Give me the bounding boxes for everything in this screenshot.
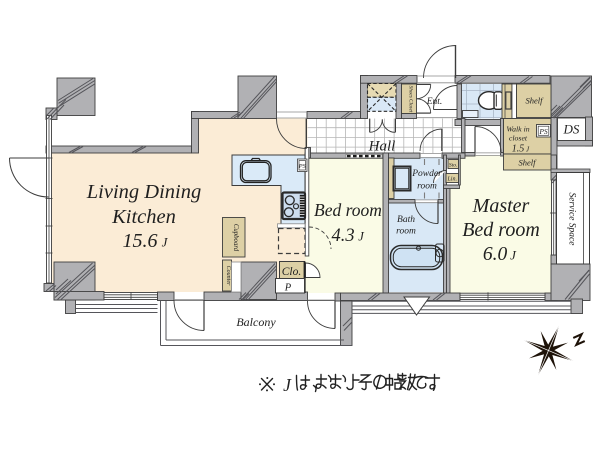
svg-text:4.3: 4.3 (331, 226, 354, 246)
svg-text:6.0: 6.0 (483, 244, 508, 265)
svg-text:Cupboard: Cupboard (232, 224, 239, 252)
svg-text:15.6: 15.6 (123, 230, 158, 252)
svg-text:Clo.: Clo. (282, 266, 302, 278)
svg-text:Shelf: Shelf (519, 158, 538, 168)
svg-text:J: J (283, 375, 292, 395)
svg-text:closet: closet (509, 134, 528, 143)
svg-text:1.5: 1.5 (512, 144, 525, 155)
svg-text:Walk in: Walk in (506, 125, 529, 134)
svg-text:Bath: Bath (397, 215, 415, 225)
svg-text:Shoes Closet: Shoes Closet (407, 86, 413, 113)
svg-text:Counter: Counter (225, 266, 231, 286)
svg-text:Hall: Hall (368, 139, 396, 155)
svg-text:Living Dining: Living Dining (86, 181, 201, 203)
svg-text:PS: PS (538, 127, 548, 136)
svg-text:DS: DS (563, 122, 580, 137)
svg-text:Ent.: Ent. (426, 97, 443, 107)
svg-text:Sto.: Sto. (449, 162, 458, 168)
svg-text:Bed room: Bed room (462, 219, 540, 241)
svg-text:Shelf: Shelf (526, 96, 545, 106)
svg-text:Bed room: Bed room (314, 200, 382, 220)
svg-text:Service Space: Service Space (567, 192, 577, 245)
svg-text:Master: Master (472, 195, 530, 217)
svg-text:Kitchen: Kitchen (111, 206, 176, 228)
svg-text:Powder: Powder (411, 169, 442, 179)
svg-text:P: P (284, 283, 292, 294)
svg-text:PS: PS (298, 163, 307, 170)
svg-text:room: room (417, 182, 437, 192)
svg-text:Balcony: Balcony (236, 315, 276, 329)
svg-text:room: room (396, 227, 416, 237)
svg-text:Lin.: Lin. (446, 177, 457, 183)
